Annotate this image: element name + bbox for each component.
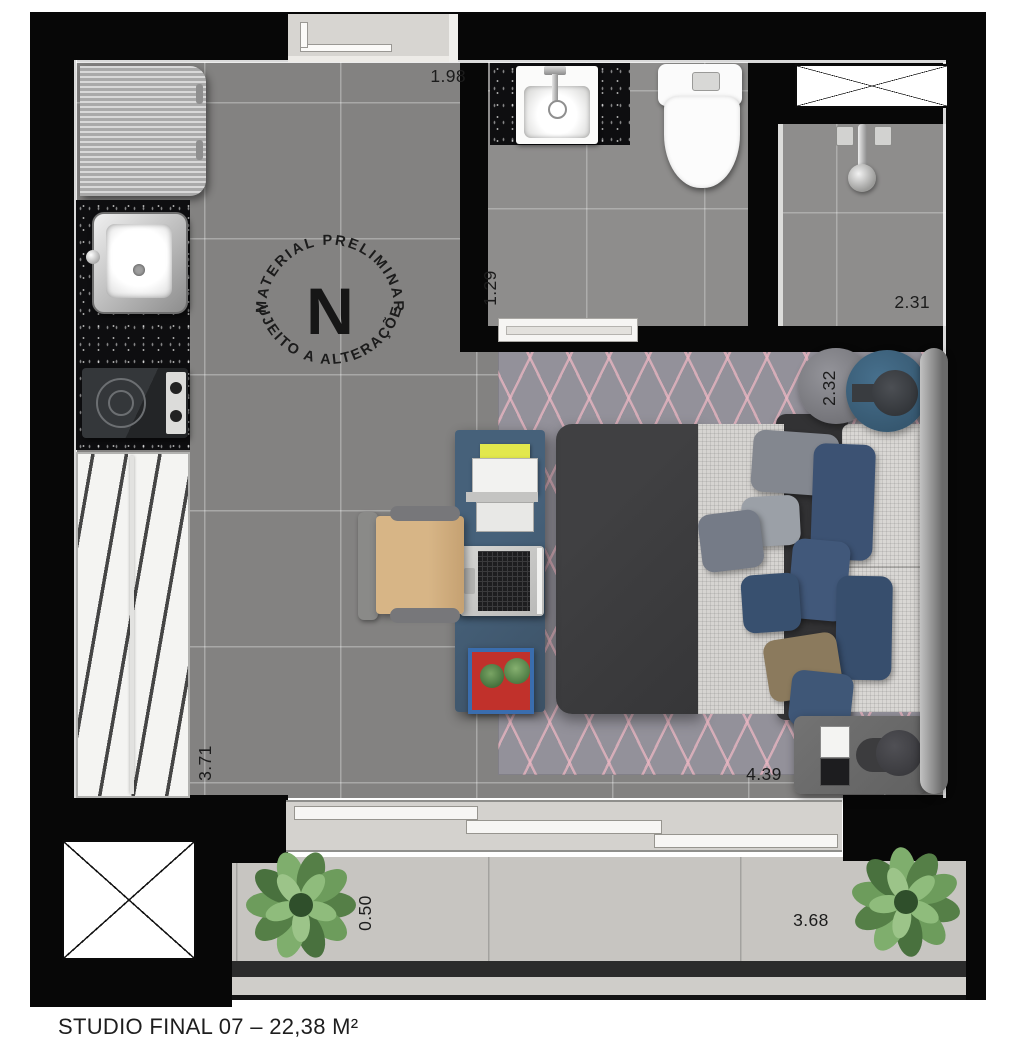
dimension-label-balcony-depth: 0.50	[355, 882, 375, 944]
balcony-outer-paving	[232, 977, 966, 997]
refrigerator-handle	[196, 140, 203, 160]
pillow	[835, 576, 893, 681]
bench-lamp	[876, 730, 922, 776]
laptop-keyboard	[478, 551, 530, 611]
sink-drain	[133, 264, 145, 276]
table-lamp	[872, 370, 918, 416]
desk-chair-armrest	[390, 608, 460, 623]
refrigerator-handle	[196, 84, 203, 104]
tray-plant	[480, 664, 504, 688]
balcony-edge-line	[232, 995, 984, 1000]
shower-head-icon	[848, 164, 876, 192]
entry-door-jamb	[300, 22, 308, 48]
entry-door-leaf	[300, 44, 392, 52]
desk-chair-seat	[376, 516, 464, 614]
cooktop-knob	[170, 410, 182, 422]
wardrobe-rail	[130, 456, 134, 794]
shaft-x-icon	[62, 840, 196, 960]
desk-chair-armrest	[390, 506, 460, 521]
dimension-label-shower: 2.31	[868, 292, 930, 312]
refrigerator	[80, 66, 206, 196]
tray-plant	[504, 658, 530, 684]
floor-plan-canvas: • MATERIAL PRELIMINAR • SUJEITO A ALTERA…	[0, 0, 1024, 1064]
kitchen-sink-basin	[106, 224, 172, 298]
bench-book	[820, 726, 850, 758]
sliding-door-panel	[654, 834, 838, 848]
desk-books	[472, 458, 538, 494]
entry-recess	[288, 14, 456, 62]
bathroom-faucet-spout	[552, 74, 558, 102]
north-compass: • MATERIAL PRELIMINAR • SUJEITO A ALTERA…	[245, 222, 415, 392]
compass-letter-n: N	[306, 274, 354, 348]
potted-plant	[243, 846, 359, 964]
wall-balcony-right	[966, 857, 986, 1000]
wall-top	[30, 12, 985, 62]
desk-papers	[476, 502, 534, 532]
dimension-label-bedroom: 4.39	[733, 764, 795, 784]
wall-right	[946, 12, 986, 798]
desk-book-yellow	[480, 444, 530, 458]
burner-ring-icon	[108, 390, 134, 416]
pillow	[697, 508, 766, 573]
sliding-door-panel	[466, 820, 662, 834]
cooktop-knob	[170, 382, 182, 394]
dimension-label-balcony-length: 3.68	[780, 910, 842, 930]
entry-sill	[288, 56, 456, 62]
shower-valve	[874, 126, 892, 146]
desk-chair-backrest	[358, 512, 378, 620]
sink-drain-ring	[548, 100, 567, 119]
dimension-label-bathroom: 1.29	[480, 257, 500, 319]
potted-plant	[848, 843, 964, 961]
dimension-label-living: 3.71	[195, 732, 215, 794]
dimension-label-bed-zone: 2.32	[819, 357, 839, 419]
laptop-hinge	[537, 548, 542, 614]
shower-glass-panel	[778, 124, 783, 326]
bathroom-door-panel	[506, 326, 632, 335]
entry-jamb-right	[449, 14, 458, 62]
kitchen-faucet	[86, 250, 100, 264]
dimension-label-entry: 1.98	[404, 66, 466, 86]
shower-valve	[836, 126, 854, 146]
laptop-trackpad	[464, 568, 475, 594]
pillow	[740, 572, 802, 634]
bench-book	[820, 758, 850, 786]
shaft-x-icon	[795, 64, 949, 108]
curtain-panel	[920, 348, 948, 794]
bed-duvet	[556, 424, 702, 714]
desk-shelf-tray	[466, 492, 538, 502]
toilet-flush-button	[692, 72, 720, 91]
floor-plan-title: STUDIO FINAL 07 – 22,38 M²	[58, 1014, 358, 1040]
sliding-door-panel	[294, 806, 478, 820]
